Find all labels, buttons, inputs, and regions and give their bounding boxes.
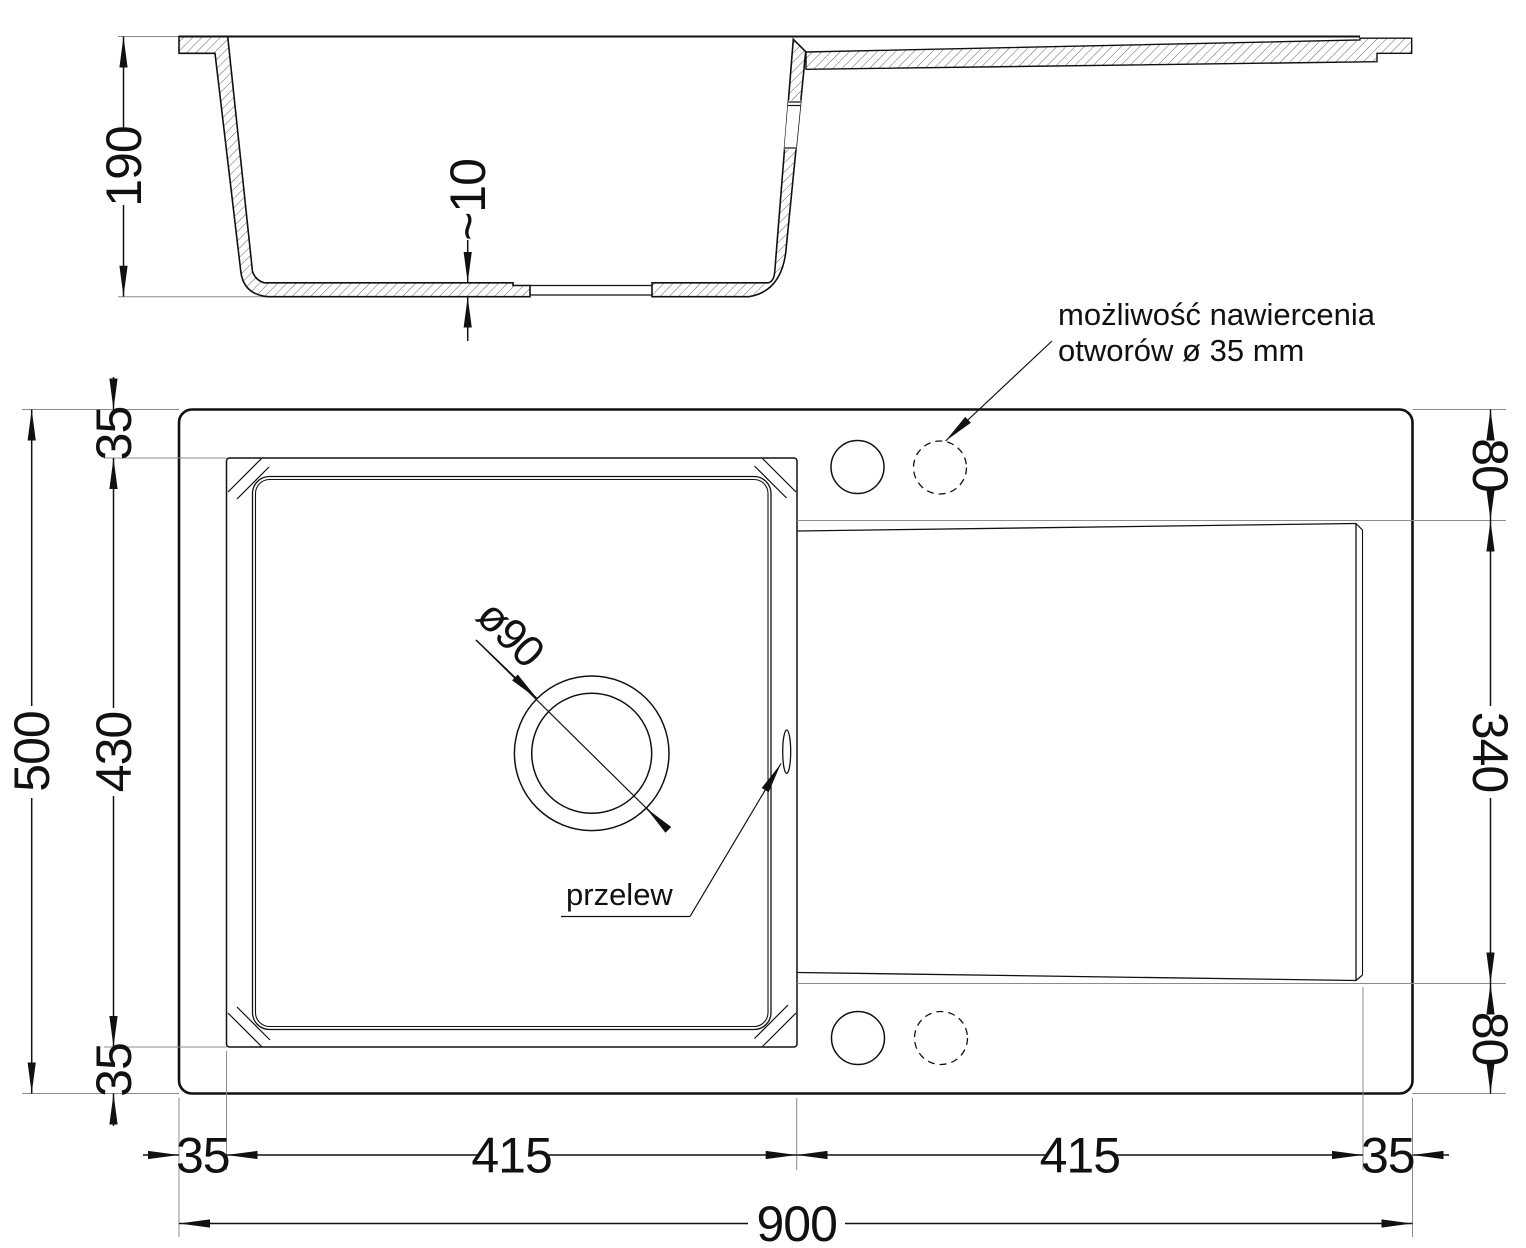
bowl-height-label: 430	[86, 712, 142, 792]
drill-note-line2: otworów ø 35 mm	[1058, 333, 1304, 368]
overflow-slot	[783, 730, 791, 773]
technical-drawing-sink: 190 ~10 ø90	[0, 0, 1526, 1248]
drainer-width-label: 415	[1040, 1128, 1120, 1184]
depth-dimension-label: 190	[96, 126, 152, 206]
total-width-label: 900	[756, 1196, 836, 1248]
drainer-top-offset-label: 80	[1462, 438, 1518, 492]
background	[0, 0, 1526, 1248]
bottom-margin-label: 35	[86, 1043, 142, 1097]
top-margin-label: 35	[86, 407, 142, 461]
total-height-label: 500	[4, 711, 60, 791]
sink-dimension-drawing: 190 ~10 ø90	[0, 0, 1526, 1248]
overflow-label: przelew	[566, 877, 673, 912]
left-margin-label: 35	[176, 1128, 230, 1184]
bottom-thickness-label: ~10	[440, 159, 496, 241]
drill-note-line1: możliwość nawiercenia	[1058, 297, 1376, 332]
drainer-height-label: 340	[1462, 712, 1518, 792]
bowl-width-label: 415	[471, 1128, 551, 1184]
right-margin-label: 35	[1361, 1128, 1415, 1184]
drainer-bottom-offset-label: 80	[1462, 1012, 1518, 1066]
